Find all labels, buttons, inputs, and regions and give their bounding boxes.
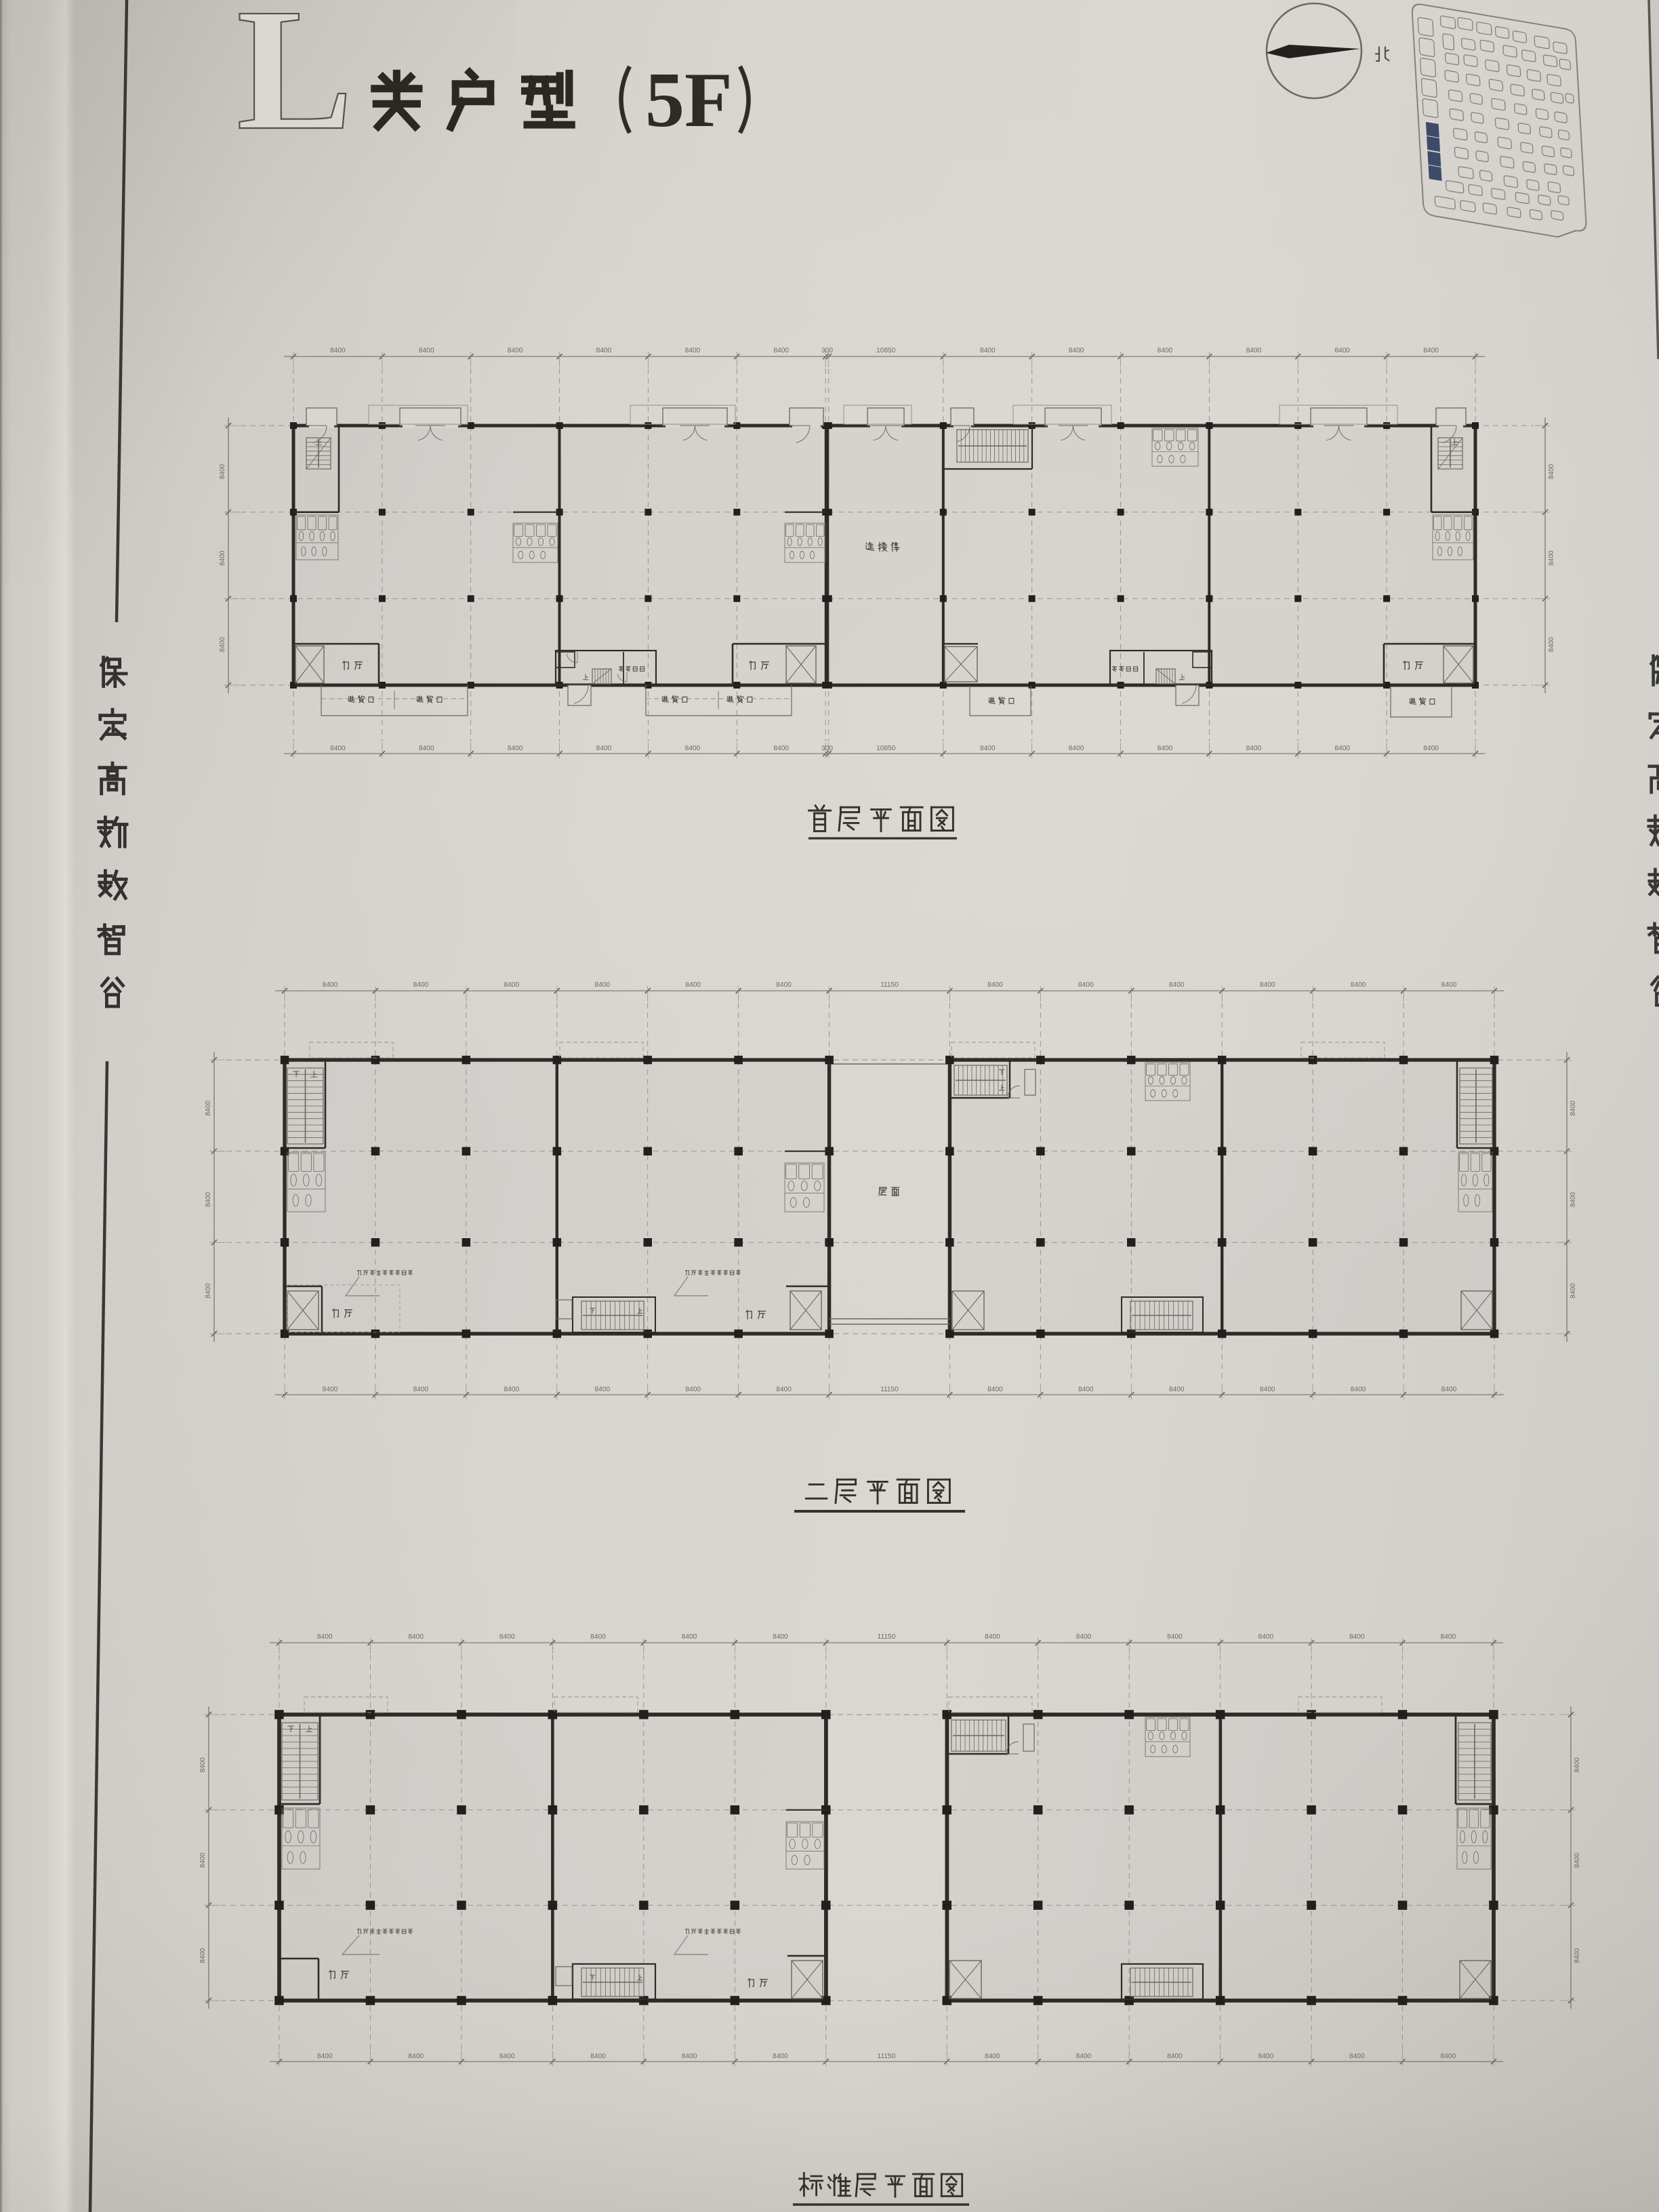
svg-text:8400: 8400	[1258, 1633, 1273, 1641]
svg-text:8400: 8400	[590, 2053, 606, 2060]
svg-text:11150: 11150	[878, 1633, 896, 1641]
svg-text:8400: 8400	[1069, 745, 1084, 752]
svg-text:8400: 8400	[1078, 981, 1094, 989]
svg-text:8400: 8400	[685, 347, 701, 354]
svg-text:8400: 8400	[1423, 745, 1439, 752]
svg-text:8400: 8400	[1548, 637, 1555, 653]
svg-text:8400: 8400	[508, 745, 523, 752]
svg-text:8400: 8400	[219, 550, 226, 566]
svg-text:8400: 8400	[330, 745, 346, 752]
svg-text:11150: 11150	[880, 1386, 899, 1393]
svg-text:8400: 8400	[219, 637, 226, 653]
svg-text:300: 300	[821, 347, 833, 354]
svg-text:8400: 8400	[1570, 1101, 1577, 1116]
svg-text:8400: 8400	[1349, 2053, 1365, 2060]
svg-text:8400: 8400	[773, 347, 789, 354]
svg-text:8400: 8400	[1441, 981, 1457, 989]
svg-text:10850: 10850	[876, 745, 896, 752]
svg-text:8400: 8400	[1169, 981, 1185, 989]
svg-text:8400: 8400	[199, 1852, 207, 1868]
svg-text:8400: 8400	[1423, 347, 1439, 354]
svg-text:8400: 8400	[1351, 1386, 1366, 1393]
svg-text:8400: 8400	[1574, 1757, 1581, 1773]
svg-text:8400: 8400	[980, 745, 996, 752]
svg-text:8400: 8400	[682, 1633, 697, 1641]
svg-text:8400: 8400	[1334, 347, 1350, 354]
svg-text:8400: 8400	[1334, 745, 1350, 752]
svg-text:8400: 8400	[219, 464, 226, 479]
svg-text:8400: 8400	[504, 981, 519, 989]
svg-text:8400: 8400	[1076, 1633, 1092, 1641]
svg-text:8400: 8400	[1167, 1633, 1183, 1641]
svg-text:8400: 8400	[1158, 347, 1173, 354]
svg-text:8400: 8400	[1260, 981, 1275, 989]
svg-text:8400: 8400	[590, 1633, 606, 1641]
svg-text:8400: 8400	[499, 1633, 515, 1641]
svg-text:8400: 8400	[1441, 1386, 1457, 1393]
svg-text:8400: 8400	[408, 2053, 424, 2060]
svg-text:8400: 8400	[317, 1633, 333, 1641]
svg-text:8400: 8400	[205, 1101, 212, 1116]
svg-text:8400: 8400	[508, 347, 523, 354]
svg-text:8400: 8400	[1548, 550, 1555, 566]
svg-text:8400: 8400	[205, 1283, 212, 1298]
svg-text:L: L	[237, 0, 353, 166]
svg-text:8400: 8400	[1158, 745, 1173, 752]
svg-text:8400: 8400	[985, 2053, 1000, 2060]
svg-text:8400: 8400	[205, 1191, 212, 1207]
svg-text:5F: 5F	[645, 57, 733, 144]
svg-text:8400: 8400	[1349, 1633, 1365, 1641]
svg-text:8400: 8400	[1574, 1852, 1581, 1868]
svg-text:8400: 8400	[980, 347, 996, 354]
svg-text:8400: 8400	[317, 2053, 333, 2060]
svg-text:8400: 8400	[323, 1386, 338, 1393]
svg-text:8400: 8400	[685, 745, 701, 752]
svg-text:8400: 8400	[1076, 2053, 1092, 2060]
svg-text:8400: 8400	[594, 981, 610, 989]
svg-text:8400: 8400	[773, 1633, 788, 1641]
svg-text:8400: 8400	[499, 2053, 515, 2060]
svg-text:8400: 8400	[987, 981, 1003, 989]
svg-text:8400: 8400	[776, 981, 792, 989]
svg-text:8400: 8400	[413, 1386, 429, 1393]
svg-text:8400: 8400	[1548, 464, 1555, 479]
svg-text:8400: 8400	[776, 1386, 792, 1393]
svg-text:8400: 8400	[199, 1948, 207, 1963]
svg-text:11150: 11150	[880, 981, 899, 989]
svg-text:8400: 8400	[682, 2053, 697, 2060]
svg-text:11150: 11150	[878, 2053, 896, 2060]
svg-text:8400: 8400	[1440, 1633, 1456, 1641]
svg-text:8400: 8400	[1351, 981, 1366, 989]
svg-text:8400: 8400	[685, 981, 701, 989]
svg-text:8400: 8400	[330, 347, 346, 354]
svg-text:8400: 8400	[685, 1386, 701, 1393]
svg-text:8400: 8400	[323, 981, 338, 989]
svg-text:8400: 8400	[1260, 1386, 1275, 1393]
svg-text:8400: 8400	[1440, 2053, 1456, 2060]
svg-text:10850: 10850	[876, 347, 896, 354]
svg-text:8400: 8400	[773, 745, 789, 752]
svg-text:8400: 8400	[413, 981, 429, 989]
svg-text:8400: 8400	[1078, 1386, 1094, 1393]
svg-text:8400: 8400	[773, 2053, 788, 2060]
svg-text:8400: 8400	[1246, 347, 1262, 354]
svg-text:8400: 8400	[985, 1633, 1000, 1641]
svg-text:8400: 8400	[419, 347, 434, 354]
svg-text:8400: 8400	[1069, 347, 1084, 354]
svg-text:8400: 8400	[1574, 1948, 1581, 1963]
svg-text:300: 300	[821, 745, 833, 752]
svg-text:8400: 8400	[987, 1386, 1003, 1393]
svg-text:8400: 8400	[594, 1386, 610, 1393]
svg-text:8400: 8400	[1258, 2053, 1273, 2060]
svg-text:8400: 8400	[1169, 1386, 1185, 1393]
svg-text:8400: 8400	[596, 745, 612, 752]
svg-text:8400: 8400	[199, 1757, 207, 1773]
svg-text:8400: 8400	[1246, 745, 1262, 752]
svg-text:8400: 8400	[1167, 2053, 1183, 2060]
svg-text:8400: 8400	[1570, 1191, 1577, 1207]
svg-text:8400: 8400	[1570, 1283, 1577, 1298]
svg-text:8400: 8400	[419, 745, 434, 752]
svg-text:8400: 8400	[504, 1386, 519, 1393]
svg-text:8400: 8400	[596, 347, 612, 354]
svg-text:8400: 8400	[408, 1633, 424, 1641]
